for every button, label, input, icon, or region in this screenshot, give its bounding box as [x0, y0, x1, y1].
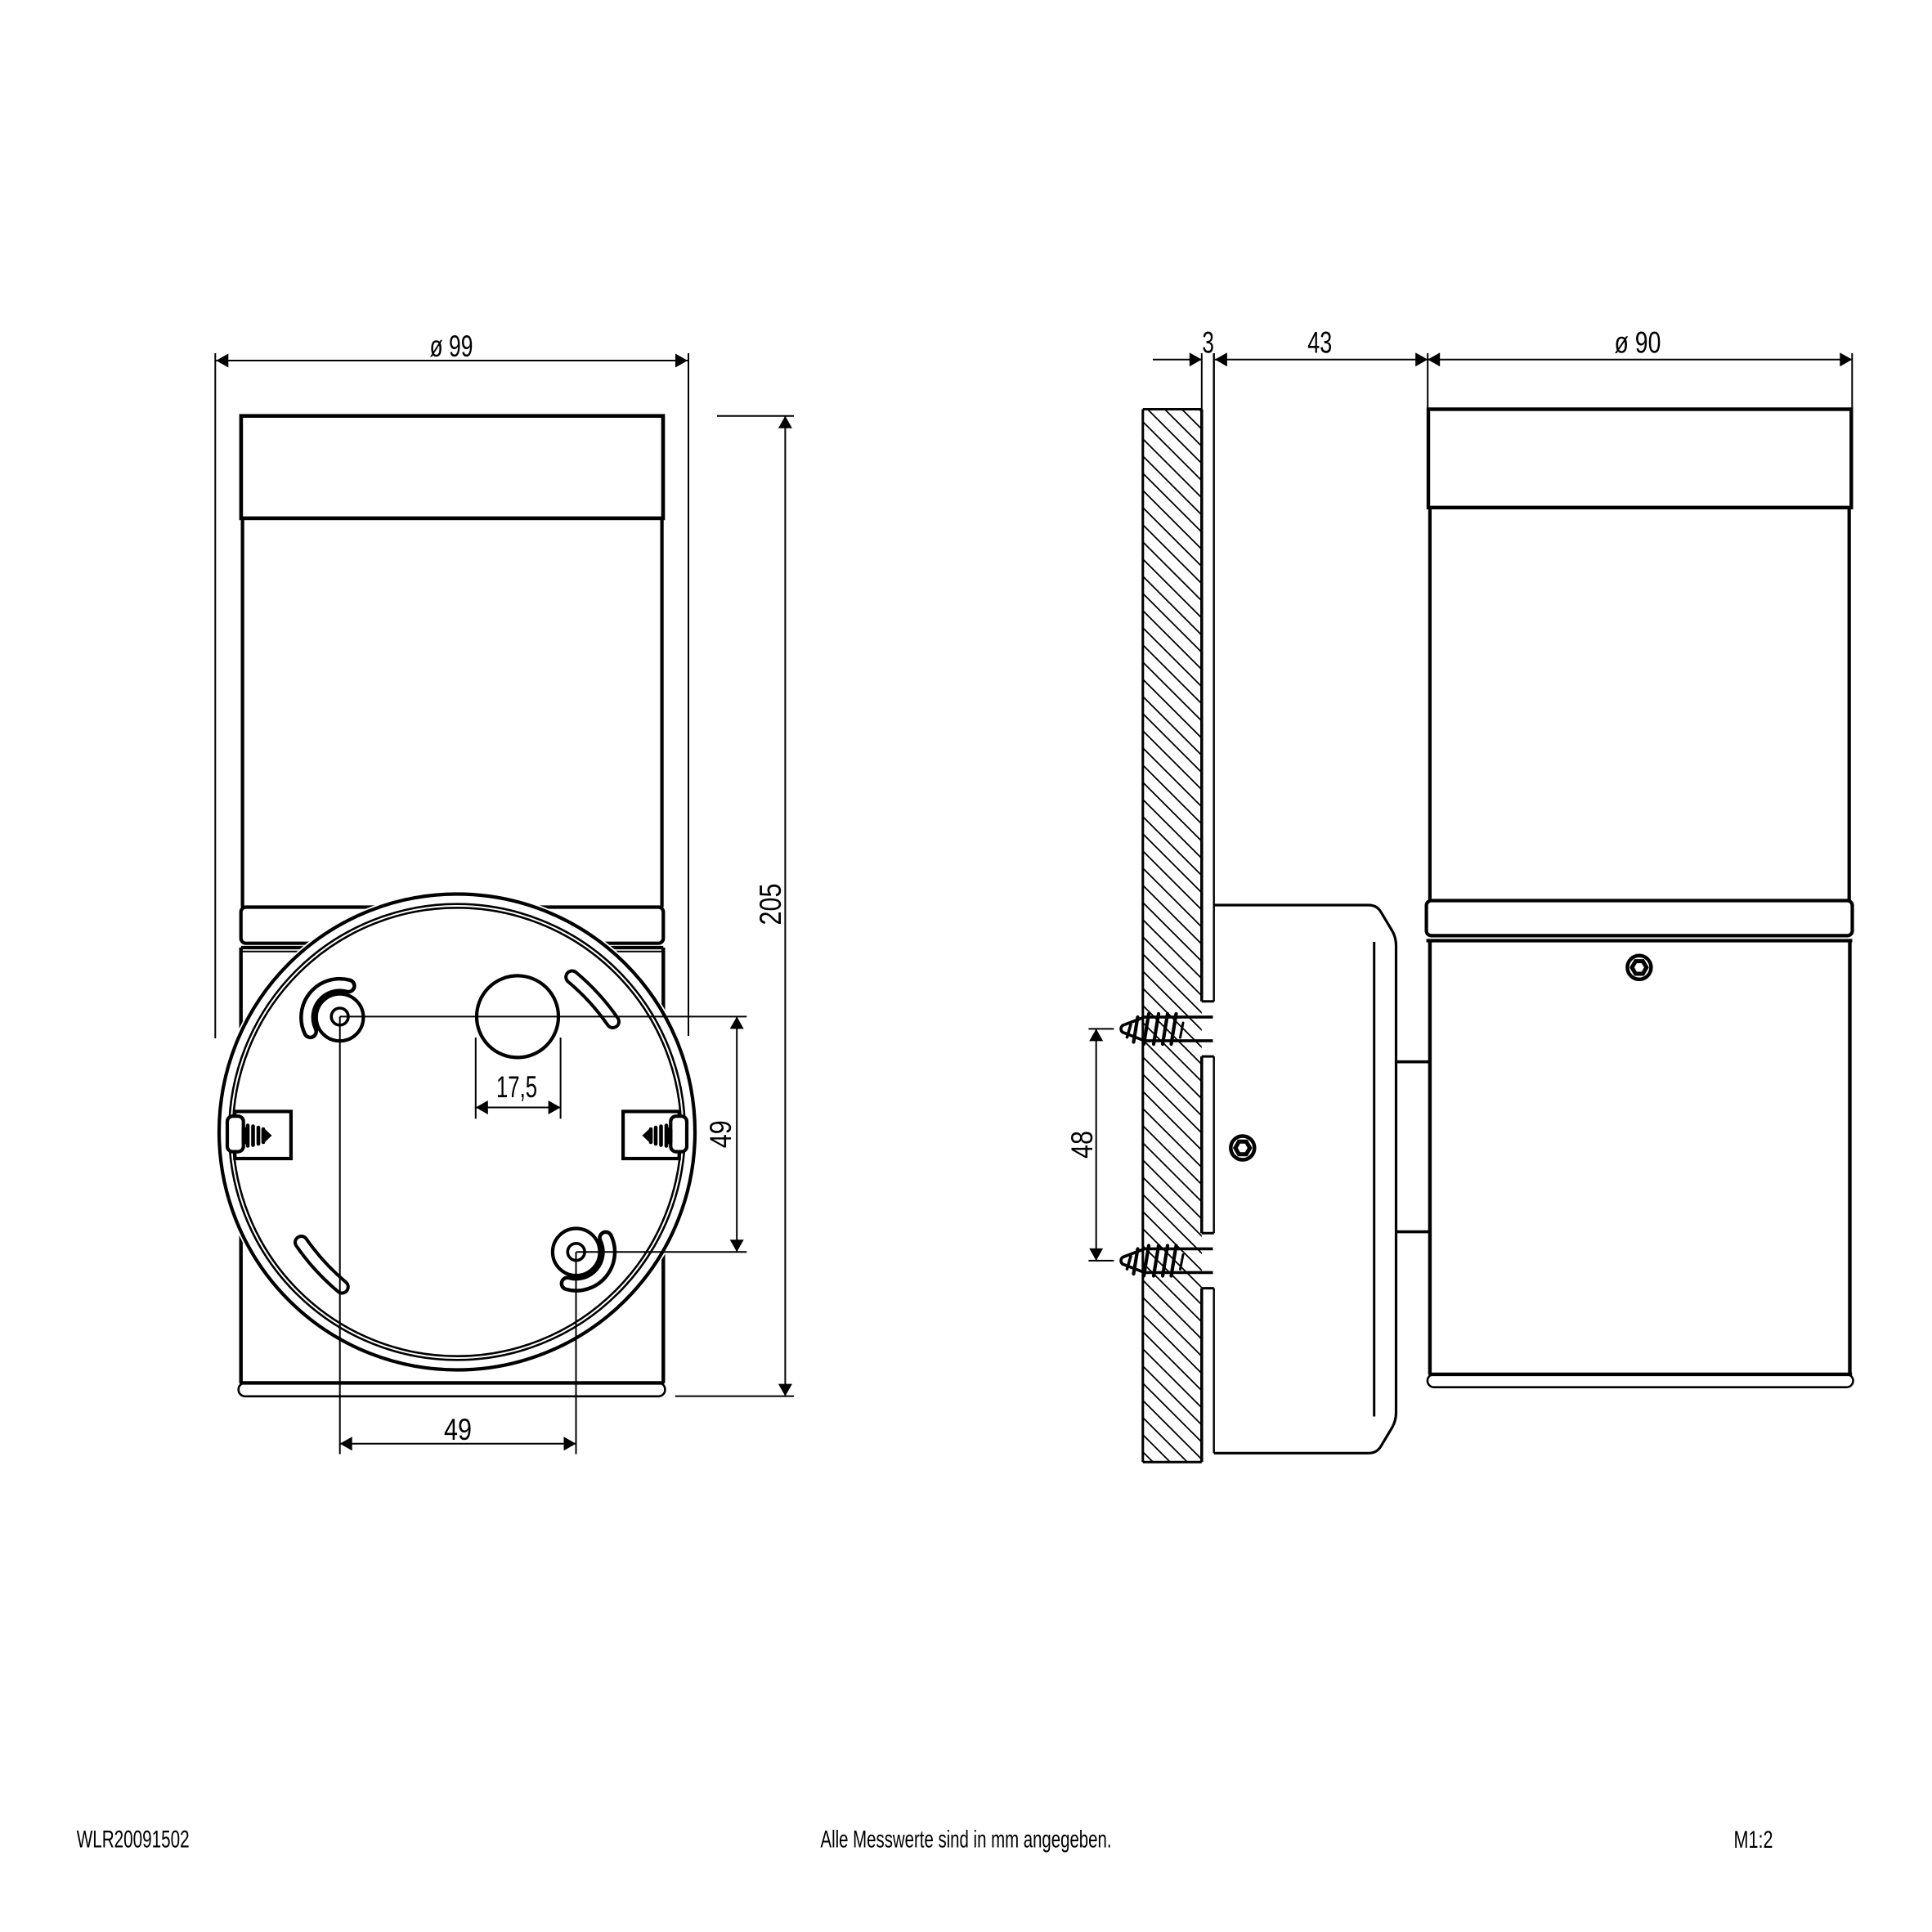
- svg-text:M1:2: M1:2: [1734, 1827, 1773, 1854]
- svg-text:43: 43: [1307, 325, 1332, 359]
- svg-text:49: 49: [444, 1413, 472, 1446]
- svg-text:ø 90: ø 90: [1615, 325, 1661, 359]
- svg-text:WLR20091502: WLR20091502: [77, 1827, 190, 1854]
- svg-text:3: 3: [1202, 325, 1214, 359]
- svg-text:205: 205: [754, 884, 787, 926]
- svg-text:17,5: 17,5: [496, 1070, 537, 1104]
- svg-text:Alle Messwerte sind in mm ange: Alle Messwerte sind in mm angegeben.: [821, 1826, 1112, 1853]
- svg-text:49: 49: [704, 1120, 737, 1148]
- svg-text:48: 48: [1065, 1131, 1099, 1159]
- svg-text:ø 99: ø 99: [430, 329, 473, 363]
